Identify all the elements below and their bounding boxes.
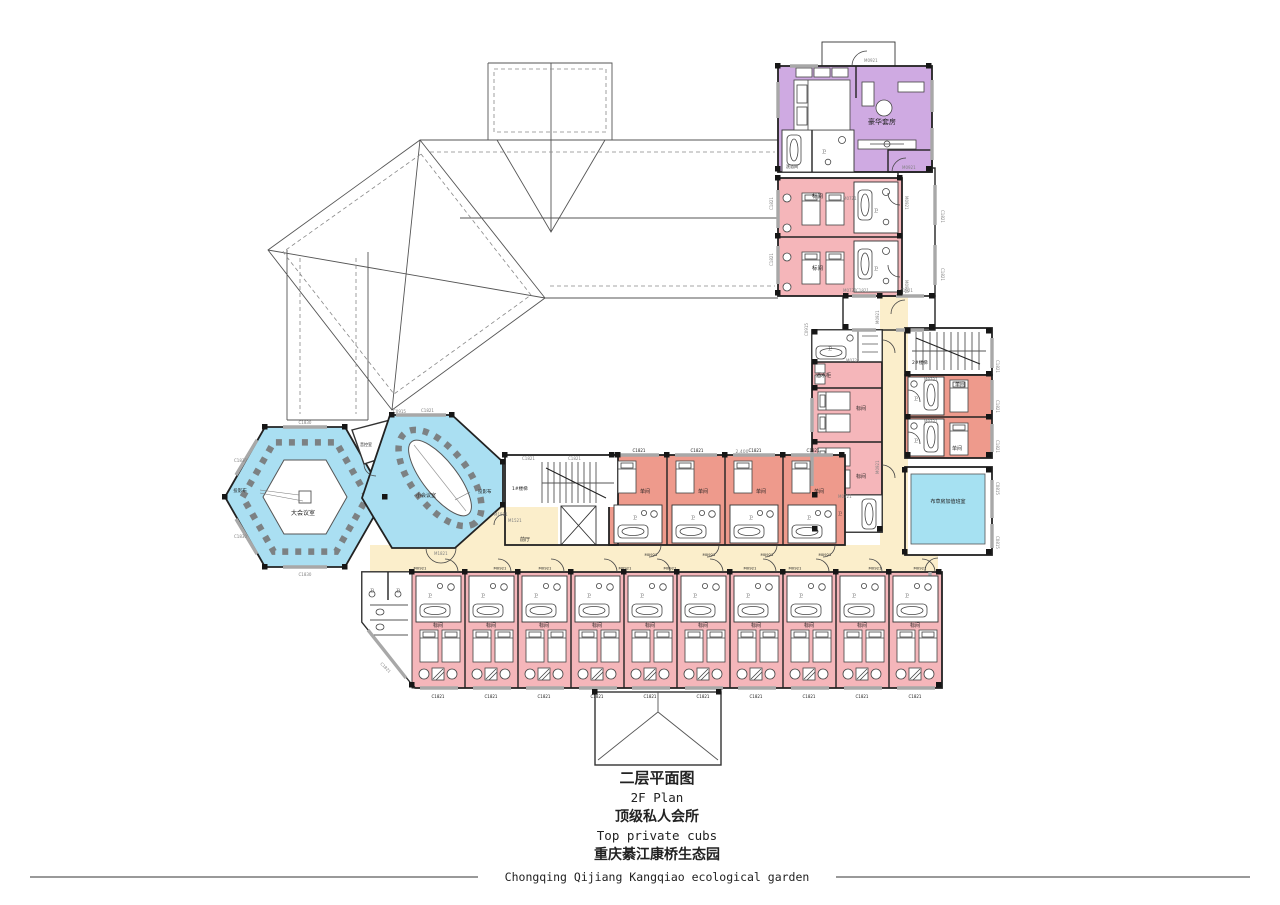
code-label: M0721 — [924, 377, 938, 382]
plan-element — [632, 604, 662, 617]
label: 卫 — [633, 515, 637, 520]
plan-element — [654, 630, 672, 662]
label-large-meeting: 大会议室 — [291, 509, 315, 517]
plan-element — [685, 630, 703, 662]
code-label: M0721 — [838, 494, 852, 499]
label: 卫 — [693, 593, 697, 598]
plan-element — [755, 583, 760, 588]
code-label: M0721 — [843, 196, 857, 201]
column — [936, 682, 942, 688]
label: 卫 — [534, 593, 538, 598]
label-standard: 标间 — [856, 405, 866, 412]
closet — [858, 330, 882, 362]
plan-element — [896, 668, 934, 680]
column — [775, 166, 781, 172]
plan-element — [813, 630, 831, 662]
code-label: C1830 — [234, 534, 247, 539]
plan-element — [442, 630, 460, 662]
code-label: M0921 — [875, 310, 880, 324]
column — [780, 569, 786, 575]
code-label: C1821 — [856, 288, 869, 293]
code-label: C1821 — [522, 456, 535, 461]
column — [775, 63, 781, 69]
column — [812, 385, 818, 391]
column — [592, 689, 598, 695]
plan-element — [437, 583, 442, 588]
label: M0921 — [539, 566, 553, 571]
code-label: C1821 — [940, 268, 945, 281]
column — [664, 452, 670, 458]
column — [812, 526, 818, 532]
column — [382, 494, 388, 500]
code-label: M0721 — [843, 288, 857, 293]
plan-element — [473, 604, 503, 617]
label: 卫 — [799, 593, 803, 598]
code-label: C1821 — [995, 360, 1000, 373]
room-linen — [911, 474, 985, 544]
floor-plan-page: 豪华套房 洗浴间 卫 标间 标间 卫 卫 卫 酒水柜 标间 标间 卫 2#楼梯 … — [0, 0, 1280, 905]
column — [986, 452, 992, 458]
label: 卫 — [749, 515, 753, 520]
column — [222, 494, 228, 500]
plan-element — [676, 461, 694, 493]
label-bath: 卫 — [874, 208, 878, 213]
plan-element — [760, 630, 778, 662]
plan-element — [699, 510, 704, 515]
luxury-suite-block — [778, 42, 932, 172]
column — [812, 492, 818, 498]
floor-plan-drawing: 豪华套房 洗浴间 卫 标间 标间 卫 卫 卫 酒水柜 标间 标间 卫 2#楼梯 … — [0, 0, 1280, 905]
code-label: C1821 — [995, 400, 1000, 413]
code-label: C1821 — [421, 408, 434, 413]
plan-element — [526, 630, 544, 662]
project-zh: 重庆綦江康桥生态园 — [594, 846, 720, 863]
column — [615, 452, 621, 458]
code-label: M1521 — [494, 512, 508, 517]
plan-title-en: 2F Plan — [631, 790, 684, 805]
column — [929, 324, 935, 330]
label: 卫 — [587, 593, 591, 598]
title-block: 二层平面图 2F Plan 顶级私人会所 Top private cubs 重庆… — [30, 769, 1250, 884]
label-bath: 卫 — [370, 588, 374, 593]
column — [905, 328, 911, 334]
label: C1821 — [644, 694, 657, 699]
column — [897, 233, 903, 239]
column — [812, 359, 818, 365]
column — [775, 175, 781, 181]
label: 卫 — [428, 593, 432, 598]
label: C1821 — [807, 448, 820, 453]
label-audio-control: 音控室 — [360, 441, 372, 447]
plan-element — [618, 525, 648, 538]
plan-element — [420, 604, 450, 617]
column — [812, 329, 818, 335]
label: C1821 — [856, 694, 869, 699]
column — [262, 564, 268, 570]
code-label: C1830 — [234, 458, 247, 463]
plan-element — [448, 584, 455, 591]
label: C1821 — [485, 694, 498, 699]
plan-element — [844, 630, 862, 662]
code-label: M0921 — [904, 196, 909, 210]
plan-element — [641, 510, 646, 515]
plan-element — [738, 630, 756, 662]
label: 标间 — [698, 622, 708, 629]
plan-element — [737, 668, 775, 680]
code-label: M0921 — [864, 58, 878, 63]
label-projection-screen: 投影布 — [478, 488, 492, 495]
label: 卫 — [640, 593, 644, 598]
label-front-hall: 前厅 — [520, 536, 530, 543]
plan-element — [707, 630, 725, 662]
plan-element — [472, 668, 510, 680]
column — [812, 439, 818, 445]
plan-element — [548, 630, 566, 662]
label-standard: 标间 — [812, 264, 823, 272]
label-projection-screen: 投影布 — [233, 487, 247, 494]
column — [342, 564, 348, 570]
column — [986, 549, 992, 555]
label: 标间 — [486, 622, 496, 629]
label: M0921 — [744, 566, 758, 571]
code-label: C1830 — [299, 572, 312, 577]
plan-element — [825, 511, 832, 518]
code-label: C0815 — [995, 482, 1000, 495]
subtitle-en: Top private cubs — [597, 828, 717, 843]
column — [843, 293, 849, 299]
column — [986, 328, 992, 334]
code-label: M0721 — [924, 419, 938, 424]
plan-element — [734, 525, 764, 538]
label: 标间 — [751, 622, 761, 629]
code-label: C0915 — [393, 409, 406, 414]
projector-stand — [299, 491, 311, 503]
plan-element — [632, 630, 650, 662]
plan-element — [579, 630, 597, 662]
plan-element — [525, 668, 563, 680]
label: C1821 — [697, 694, 710, 699]
label: M0921 — [789, 566, 803, 571]
plan-element — [631, 668, 669, 680]
column — [902, 467, 908, 473]
column — [843, 324, 849, 330]
column — [621, 569, 627, 575]
label: C1821 — [803, 694, 816, 699]
column — [780, 452, 786, 458]
plan-element — [734, 461, 752, 493]
plan-element — [473, 630, 491, 662]
label: C1821 — [909, 694, 922, 699]
front-hall-area — [505, 507, 558, 545]
label-bath: 卫 — [396, 588, 400, 593]
plan-title-zh: 二层平面图 — [619, 769, 694, 787]
column — [905, 371, 911, 377]
column — [342, 424, 348, 430]
label: 标间 — [433, 622, 443, 629]
plan-element — [702, 583, 707, 588]
column — [775, 290, 781, 296]
main-corridor — [370, 545, 908, 572]
column — [568, 569, 574, 575]
label: C1821 — [749, 448, 762, 453]
plan-element — [897, 630, 915, 662]
label: 卫 — [905, 593, 909, 598]
plan-element — [618, 461, 636, 493]
label-stair-2: 2#楼梯 — [912, 359, 928, 366]
label: 标间 — [645, 622, 655, 629]
plan-element — [526, 604, 556, 617]
plan-element — [919, 630, 937, 662]
code-label: C1830 — [299, 420, 312, 425]
label: 标间 — [539, 622, 549, 629]
label: 单间 — [640, 488, 650, 495]
label-luxury-suite: 豪华套房 — [868, 117, 896, 126]
label-bath: 卫 — [874, 266, 878, 271]
label-bath: 卫 — [914, 396, 918, 401]
code-label: C1821 — [769, 253, 774, 266]
column — [500, 502, 506, 508]
column — [716, 689, 722, 695]
plan-element — [713, 584, 720, 591]
label-shower-room: 洗浴间 — [786, 163, 798, 169]
label-bath: 卫 — [914, 438, 918, 443]
sofa — [898, 82, 924, 92]
code-label: M0921 — [875, 460, 880, 474]
label: M0921 — [414, 566, 428, 571]
plan-element — [579, 604, 609, 617]
label: 单间 — [756, 488, 766, 495]
label: M0921 — [914, 566, 928, 571]
plan-element — [685, 604, 715, 617]
code-label: M0721 — [846, 358, 860, 363]
column — [609, 452, 615, 458]
column — [877, 526, 883, 532]
sofa — [862, 82, 874, 106]
code-label: C1821 — [769, 197, 774, 210]
column — [409, 682, 415, 688]
plan-element — [543, 583, 548, 588]
vertical-corridor — [880, 296, 908, 572]
label-single: 单间 — [952, 445, 962, 452]
label-bath: 卫 — [828, 346, 832, 351]
plan-element — [601, 630, 619, 662]
column — [727, 569, 733, 575]
plan-element — [767, 511, 774, 518]
column — [502, 452, 508, 458]
plan-element — [490, 583, 495, 588]
column — [905, 414, 911, 420]
code-label: C0915 — [804, 323, 809, 336]
code-label: C1821 — [940, 210, 945, 223]
column — [926, 63, 932, 69]
column — [936, 569, 942, 575]
plan-element — [709, 511, 716, 518]
column — [986, 371, 992, 377]
plan-element — [791, 604, 821, 617]
label: C1821 — [633, 448, 646, 453]
label: C1821 — [691, 448, 704, 453]
code-label: M1521 — [508, 518, 522, 523]
column — [722, 452, 728, 458]
label-bath: 卫 — [822, 149, 826, 154]
label: 卫 — [746, 593, 750, 598]
plan-element — [872, 584, 879, 591]
column — [389, 412, 395, 418]
plan-element — [419, 668, 457, 680]
label: M0921 — [869, 566, 883, 571]
label: C1821 — [432, 694, 445, 699]
column — [775, 233, 781, 239]
label: 卫 — [807, 515, 811, 520]
plan-element — [843, 668, 881, 680]
plan-element — [819, 584, 826, 591]
plan-element — [914, 583, 919, 588]
plan-element — [660, 584, 667, 591]
code-label: C1821 — [995, 440, 1000, 453]
column — [515, 569, 521, 575]
code-label: M0921 — [902, 165, 916, 170]
column — [926, 166, 932, 172]
column — [897, 290, 903, 296]
code-label: C1821 — [568, 456, 581, 461]
column — [902, 549, 908, 555]
plan-element — [792, 461, 810, 493]
plan-element — [676, 525, 706, 538]
label: 卫 — [691, 515, 695, 520]
project-en: Chongqing Qijiang Kangqiao ecological ga… — [505, 870, 810, 884]
column — [905, 452, 911, 458]
plan-element — [790, 668, 828, 680]
subtitle-zh: 顶级私人会所 — [615, 808, 699, 825]
label: 标间 — [804, 622, 814, 629]
label: 卫 — [481, 593, 485, 598]
column — [839, 452, 845, 458]
column — [929, 293, 935, 299]
column — [409, 569, 415, 575]
column — [986, 414, 992, 420]
code-label: C0815 — [995, 536, 1000, 549]
label: 标间 — [857, 622, 867, 629]
plan-element — [596, 583, 601, 588]
code-label: C1821 — [379, 661, 392, 674]
plan-element — [651, 511, 658, 518]
label: M0921 — [494, 566, 508, 571]
plan-element — [844, 604, 874, 617]
column — [877, 293, 883, 299]
column — [262, 424, 268, 430]
plan-element — [808, 583, 813, 588]
label-single: 单间 — [955, 381, 965, 388]
plan-element — [861, 583, 866, 588]
top-standard-block — [778, 178, 902, 296]
column — [986, 467, 992, 473]
code-label: M1821 — [434, 551, 448, 556]
label-bath: 卫 — [838, 511, 842, 516]
label: 标间 — [910, 622, 920, 629]
plan-element — [495, 630, 513, 662]
plan-element — [684, 668, 722, 680]
label: C1821 — [538, 694, 551, 699]
round-table — [876, 100, 892, 116]
label-stair-1: 1#楼梯 — [512, 485, 528, 492]
plan-element — [815, 510, 820, 515]
label: C1821 — [591, 694, 604, 699]
label-bar-cabinet: 酒水柜 — [816, 372, 831, 379]
plan-element — [897, 604, 927, 617]
column — [897, 175, 903, 181]
label-small-meeting: 小会议室 — [416, 492, 436, 499]
label: 标间 — [592, 622, 602, 629]
column — [833, 569, 839, 575]
column — [449, 412, 455, 418]
upper-corridor — [898, 168, 935, 296]
plan-element — [649, 583, 654, 588]
label: 卫 — [852, 593, 856, 598]
plan-element — [791, 630, 809, 662]
column — [462, 569, 468, 575]
label-standard: 标间 — [856, 473, 866, 480]
column — [674, 569, 680, 575]
plan-element — [501, 584, 508, 591]
plan-element — [766, 584, 773, 591]
plan-element — [738, 604, 768, 617]
plan-element — [554, 584, 561, 591]
label: C1821 — [750, 694, 763, 699]
porch-roof — [595, 692, 721, 765]
plan-element — [607, 584, 614, 591]
plan-element — [757, 510, 762, 515]
plan-element — [925, 584, 932, 591]
roof-outline — [268, 63, 778, 420]
plan-element — [578, 668, 616, 680]
label-standard: 标间 — [812, 192, 823, 200]
column — [886, 569, 892, 575]
column — [500, 459, 506, 465]
label-linen-duty: 布草房加值班室 — [930, 498, 965, 505]
plan-element — [420, 630, 438, 662]
label: 单间 — [698, 488, 708, 495]
plan-element — [866, 630, 884, 662]
